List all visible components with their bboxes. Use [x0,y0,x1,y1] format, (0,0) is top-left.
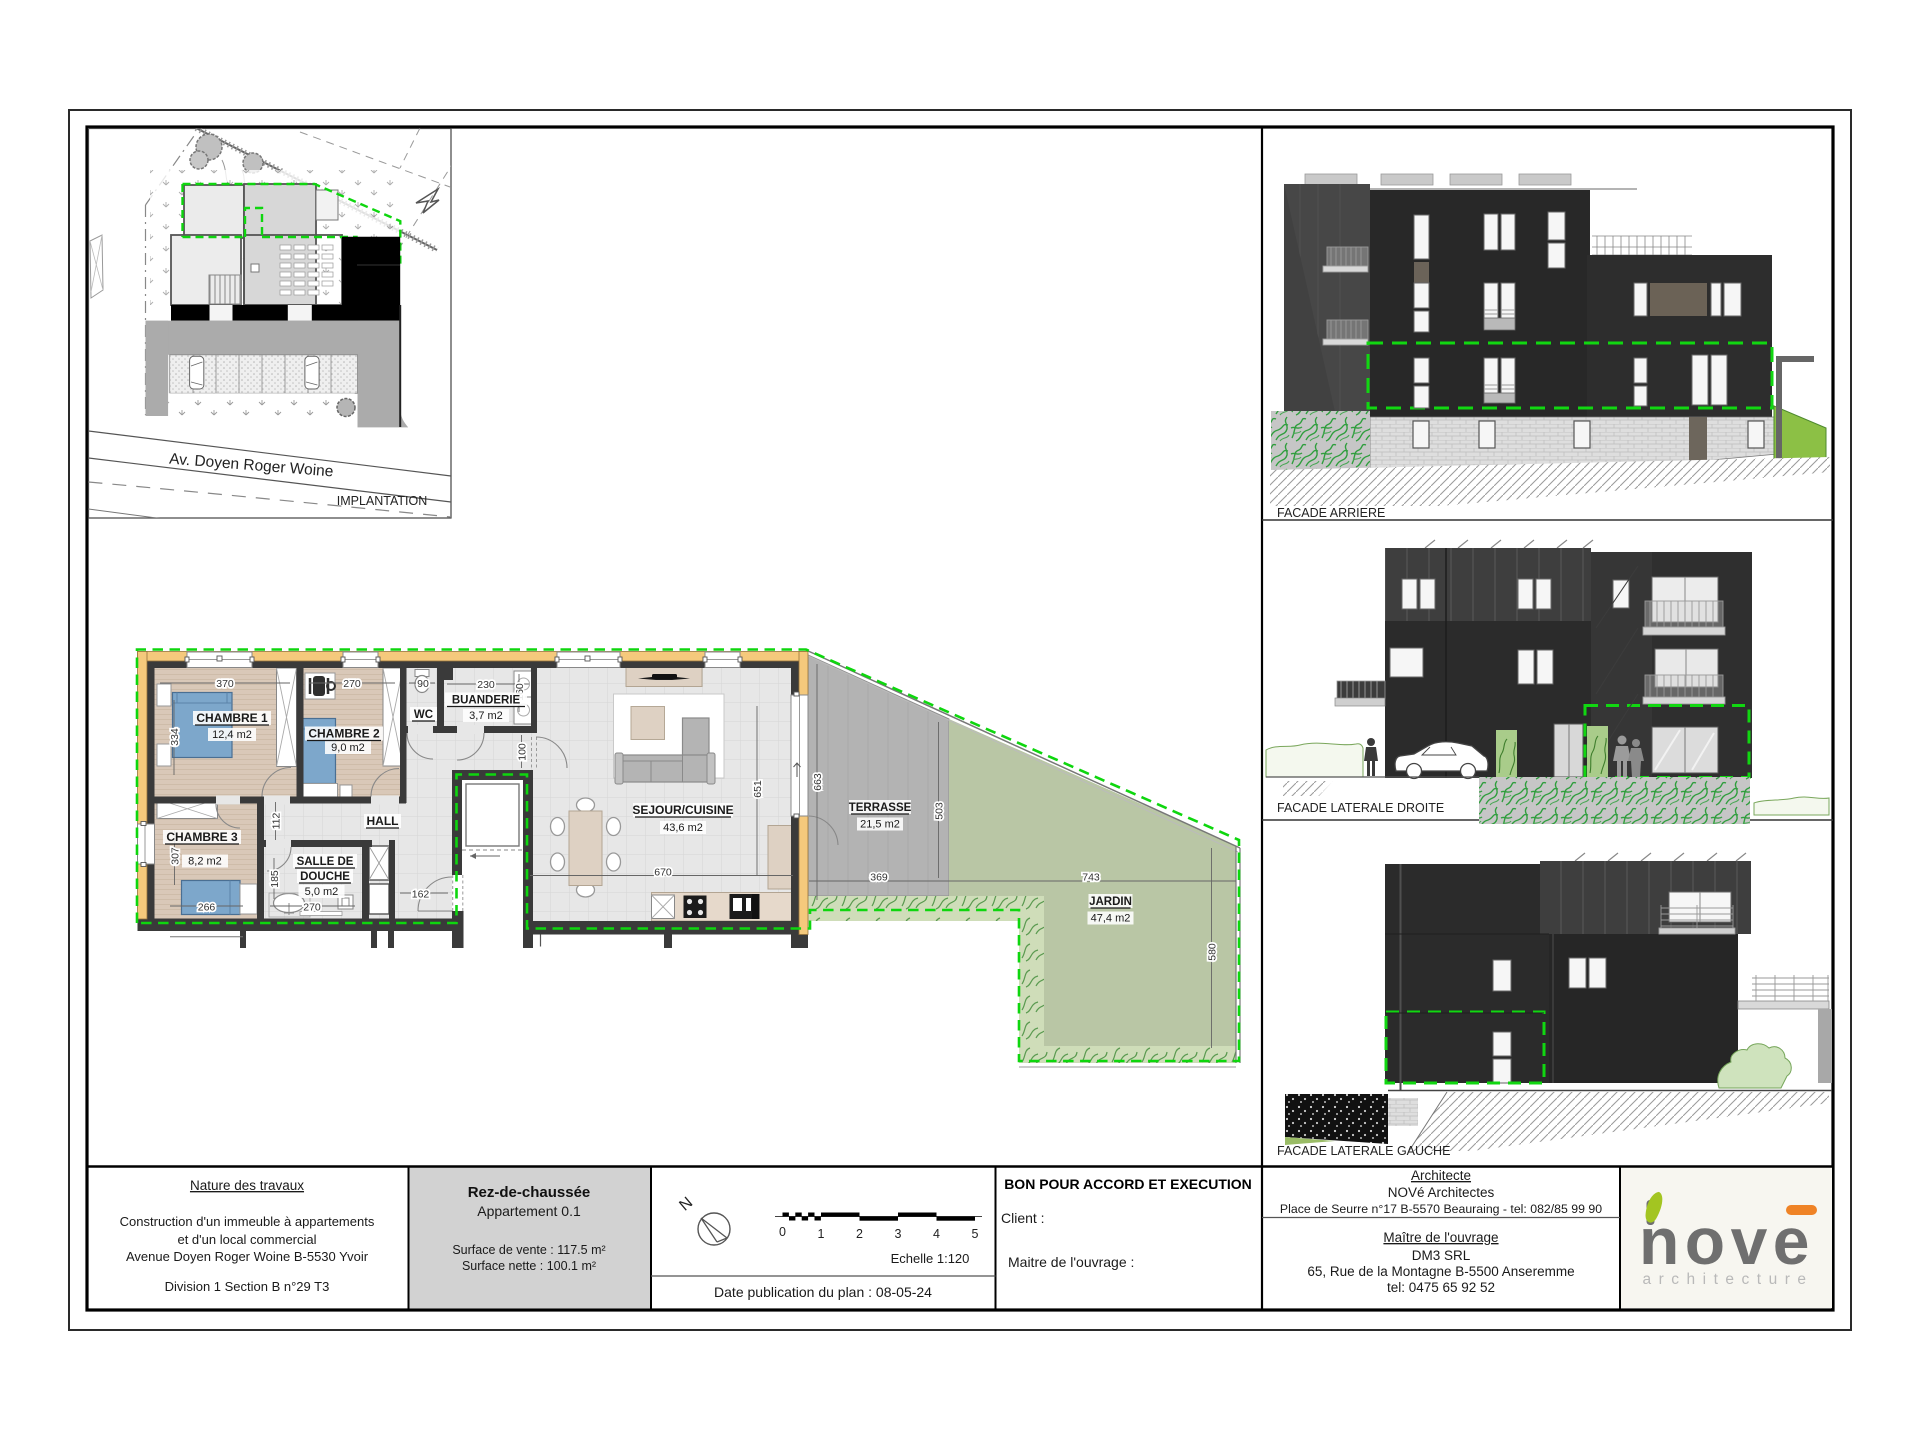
svg-text:IMPLANTATION: IMPLANTATION [337,494,428,508]
svg-text:CHAMBRE 2: CHAMBRE 2 [308,727,380,741]
svg-text:Avenue Doyen Roger Woine B-553: Avenue Doyen Roger Woine B-5530 Yvoir [126,1249,369,1264]
svg-text:Surface de vente : 117.5 m²: Surface de vente : 117.5 m² [452,1243,605,1257]
svg-text:5,0 m2: 5,0 m2 [305,886,339,898]
svg-text:47,4 m2: 47,4 m2 [1091,913,1131,925]
svg-text:90: 90 [417,678,429,690]
svg-text:Division 1 Section B n°29 T3: Division 1 Section B n°29 T3 [165,1279,330,1294]
svg-text:670: 670 [654,867,672,879]
svg-text:BUANDERIE: BUANDERIE [452,695,521,707]
svg-text:Surface nette : 100.1 m²: Surface nette : 100.1 m² [462,1259,596,1273]
svg-text:162: 162 [412,889,430,901]
svg-text:SEJOUR/CUISINE: SEJOUR/CUISINE [632,803,733,817]
svg-text:Maître de l'ouvrage: Maître de l'ouvrage [1383,1230,1498,1245]
svg-text:FACADE LATERALE GAUCHE: FACADE LATERALE GAUCHE [1277,1144,1450,1158]
svg-text:8,2 m2: 8,2 m2 [188,856,222,868]
svg-text:Nature des travaux: Nature des travaux [190,1178,304,1193]
svg-text:Echelle 1:120: Echelle 1:120 [891,1251,970,1266]
svg-text:230: 230 [477,679,495,691]
svg-text:3,7 m2: 3,7 m2 [469,710,503,722]
svg-text:369: 369 [870,872,888,884]
svg-text:1: 1 [818,1227,825,1241]
svg-text:3: 3 [895,1227,902,1241]
svg-text:TERRASSE: TERRASSE [849,802,912,814]
svg-text:NOVé Architectes: NOVé Architectes [1388,1185,1495,1200]
svg-text:503: 503 [934,802,946,820]
svg-text:185: 185 [269,870,281,888]
svg-text:Date publication du plan : 08-: Date publication du plan : 08-05-24 [714,1284,932,1300]
svg-text:12,4 m2: 12,4 m2 [212,729,252,741]
svg-text:Appartement 0.1: Appartement 0.1 [477,1203,581,1219]
svg-text:9,0 m2: 9,0 m2 [331,742,365,754]
svg-text:100: 100 [517,743,529,761]
svg-text:21,5 m2: 21,5 m2 [860,819,900,831]
svg-text:SALLE DE: SALLE DE [297,856,354,868]
svg-text:HALL: HALL [367,814,399,828]
svg-text:43,6 m2: 43,6 m2 [663,822,703,834]
svg-text:Place de Seurre n°17 B-5570 Be: Place de Seurre n°17 B-5570 Beauraing - … [1280,1202,1602,1216]
svg-text:334: 334 [169,728,181,746]
svg-text:5: 5 [972,1227,979,1241]
svg-text:DM3 SRL: DM3 SRL [1412,1248,1471,1263]
svg-text:2: 2 [856,1227,863,1241]
svg-text:743: 743 [1082,872,1100,884]
svg-text:WC: WC [414,709,433,721]
svg-text:tel: 0475 65 92 52: tel: 0475 65 92 52 [1387,1280,1495,1295]
svg-text:Maitre de l'ouvrage :: Maitre de l'ouvrage : [1008,1254,1134,1270]
svg-text:370: 370 [216,678,234,690]
svg-text:architecture: architecture [1643,1271,1814,1288]
svg-text:FACADE ARRIERE: FACADE ARRIERE [1277,506,1385,520]
svg-text:270: 270 [343,678,361,690]
svg-text:651: 651 [752,780,764,798]
svg-text:580: 580 [1207,943,1219,961]
svg-text:Construction d'un immeuble à a: Construction d'un immeuble à appartement… [120,1214,375,1229]
svg-text:JARDIN: JARDIN [1089,896,1132,908]
svg-text:65, Rue de la Montagne B-5500: 65, Rue de la Montagne B-5500 Anseremme [1307,1264,1574,1279]
svg-text:4: 4 [933,1227,940,1241]
svg-text:112: 112 [271,812,283,829]
svg-text:663: 663 [812,773,824,791]
svg-text:nove: nove [1639,1204,1815,1278]
svg-text:307: 307 [170,847,182,865]
svg-text:FACADE LATERALE DROITE: FACADE LATERALE DROITE [1277,801,1444,815]
svg-text:DOUCHE: DOUCHE [300,871,350,883]
svg-text:Client :: Client : [1001,1210,1045,1226]
svg-text:BON POUR ACCORD ET EXECUTION: BON POUR ACCORD ET EXECUTION [1004,1176,1252,1192]
svg-text:CHAMBRE 3: CHAMBRE 3 [166,830,238,844]
svg-text:Architecte: Architecte [1411,1168,1471,1183]
svg-text:0: 0 [779,1225,786,1239]
svg-text:CHAMBRE 1: CHAMBRE 1 [196,711,268,725]
svg-text:270: 270 [303,902,321,914]
svg-text:Rez-de-chaussée: Rez-de-chaussée [468,1184,591,1201]
svg-text:et d'un local commercial: et d'un local commercial [177,1232,316,1247]
svg-text:266: 266 [198,902,216,914]
